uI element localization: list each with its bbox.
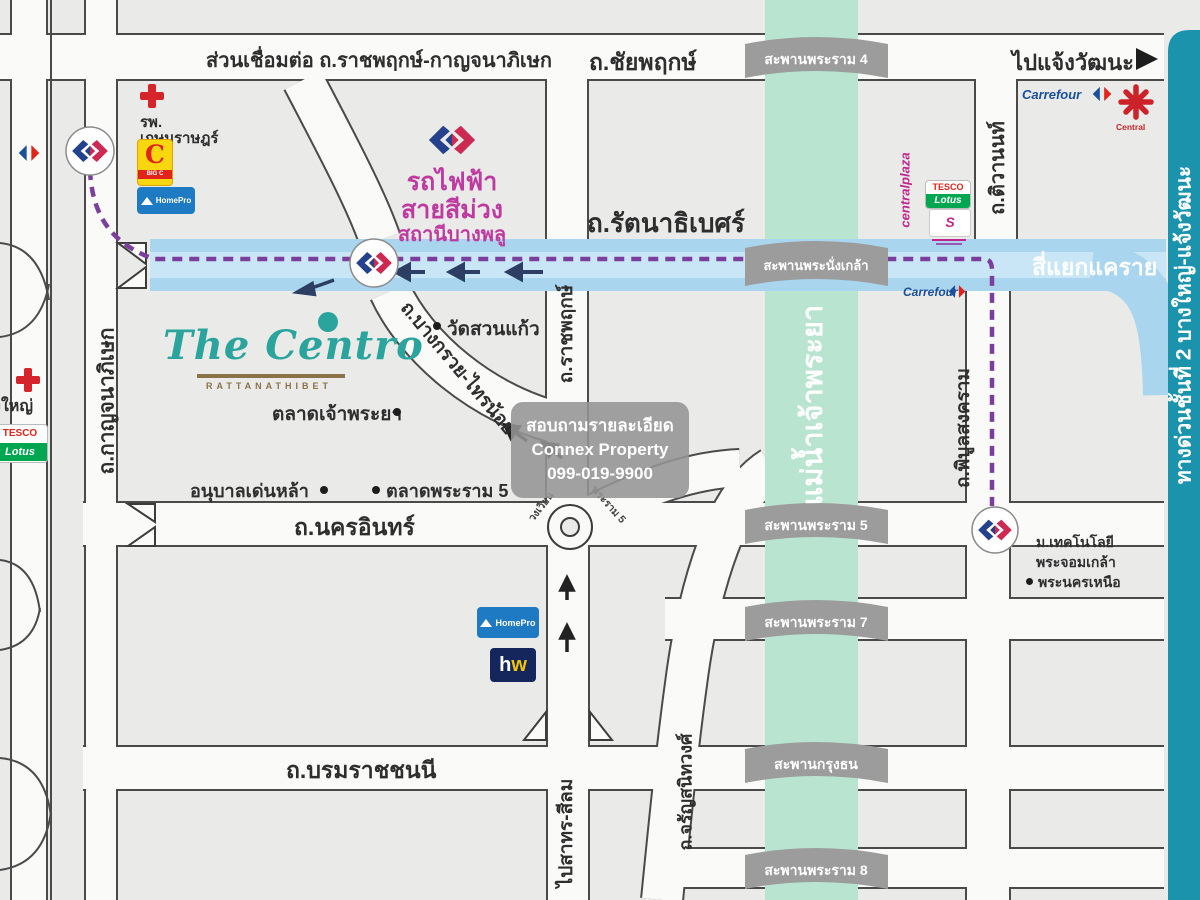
poi-talad-rama5: ตลาดพระราม 5 (386, 476, 508, 505)
carrefour-logo: Carrefour (1022, 87, 1081, 102)
carrefour-mark-icon (18, 143, 40, 163)
house-icon (141, 197, 153, 205)
centralplaza-logo: centralplaza (898, 152, 913, 227)
hospital-cross-icon (140, 84, 164, 108)
watermark-line2: Connex Property (511, 440, 689, 460)
road-label-khae-rai: สี่แยกแคราย (1032, 250, 1157, 286)
poi-dot (1026, 578, 1033, 585)
tesco-lotus-logo: TESCO Lotus (925, 180, 971, 209)
poi-dot (393, 408, 401, 416)
road-label-rattanathibet: ถ.รัตนาธิเบศร์ (587, 203, 745, 244)
carrefour-mark-icon (1092, 85, 1112, 103)
project-logo-underline (197, 374, 345, 378)
plaza-caption-bar (932, 239, 966, 241)
bridge-label-rama5: สะพานพระราม 5 (736, 515, 896, 537)
poi-university-3: พระนครเหนือ (1038, 572, 1121, 594)
road-label-phibunsongkhram: ถ.พิบูลสงคราม (948, 368, 978, 488)
carrefour-mark-icon (948, 283, 966, 300)
project-location-dot (318, 312, 338, 332)
poi-dot (320, 486, 328, 494)
road-label-to-chaengwattana: ไปแจ้งวัฒนะ (1012, 45, 1134, 80)
bridge-label-rama8: สะพานพระราม 8 (736, 860, 896, 882)
road-label-to-sathorn-silom: ไปสาทร-สีลม (551, 779, 581, 888)
rattanathibet-highway-band (150, 239, 1166, 395)
poi-dot (372, 486, 380, 494)
poi-university-1: ม.เทคโนโลยี (1036, 532, 1114, 554)
bridge-label-krungthon: สะพานกรุงธน (736, 754, 896, 776)
central-logo-icon (1121, 87, 1151, 117)
watermark: สอบถามรายละเอียด Connex Property 099-019… (511, 402, 689, 498)
homepro-logo: HomePro (137, 187, 195, 214)
hospital-cross-icon (16, 368, 40, 392)
project-subtitle: RATTANATHIBET (206, 381, 332, 391)
homepro-logo: HomePro (477, 607, 539, 638)
river-label: แม่น้ำเจ้าพระยา (789, 305, 835, 506)
poi-dot (433, 322, 441, 330)
bigc-logo: C BIG C (137, 139, 173, 186)
central-logo: Central (1116, 122, 1145, 132)
bridge-label-phranangklao: สะพานพระนั่งเกล้า (736, 255, 896, 276)
plaza-caption-bar (936, 243, 962, 245)
poi-talad-chaophraya: ตลาดเจ้าพระยา (272, 399, 402, 429)
house-icon (480, 619, 492, 627)
road-label-nakhon-in: ถ.นครอินทร์ (294, 510, 415, 546)
homeworks-logo: h w (490, 648, 536, 682)
road-label-ratchaphruek: ถ.ราชพฤกษ์ (551, 285, 581, 384)
road-label-chaiyaphruek: ถ.ชัยพฤกษ์ (589, 45, 697, 81)
road-label-kanchanaphisek: ถ.กาญจนาภิเษก (91, 328, 124, 475)
tesco-lotus-logo: TESCO Lotus (0, 424, 48, 463)
road-label-tiwanon: ถ.ติวานนท์ (981, 121, 1013, 215)
bridge-label-rama4: สะพานพระราม 4 (736, 49, 896, 71)
plaza-logo: S (929, 209, 971, 237)
road-label-connector: ส่วนเชื่อมต่อ ถ.ราชพฤกษ์-กาญจนาภิเษก (206, 44, 552, 76)
rama5-roundabout (548, 505, 592, 549)
transit-station-name: สถานีบางพลู (362, 218, 542, 250)
poi-university-2: พระจอมเกล้า (1036, 552, 1116, 574)
road-label-borommaratchachonnani: ถ.บรมราชชนนี (286, 753, 436, 789)
road-label-charansanitwong: ถ.จรัญสนิทวงศ์ (671, 734, 700, 851)
watermark-line1: สอบถามรายละเอียด (511, 416, 689, 436)
bridge-label-rama7: สะพานพระราม 7 (736, 612, 896, 634)
project-logo: The Centro (163, 322, 424, 369)
map-canvas: ส่วนเชื่อมต่อ ถ.ราชพฤกษ์-กาญจนาภิเษก ถ.ช… (0, 0, 1200, 900)
watermark-line3: 099-019-9900 (511, 464, 689, 484)
poi-wat-suan-kaew: วัดสวนแก้ว (447, 314, 540, 344)
expressway-label: ทางด่วนชั้นที่ 2 บางใหญ่-แจ้งวัฒนะ (1168, 166, 1200, 484)
poi-anuban-denla: อนุบาลเด่นหล้า (190, 476, 309, 505)
poi-bang-yai: บางใหญ่ (0, 394, 33, 419)
